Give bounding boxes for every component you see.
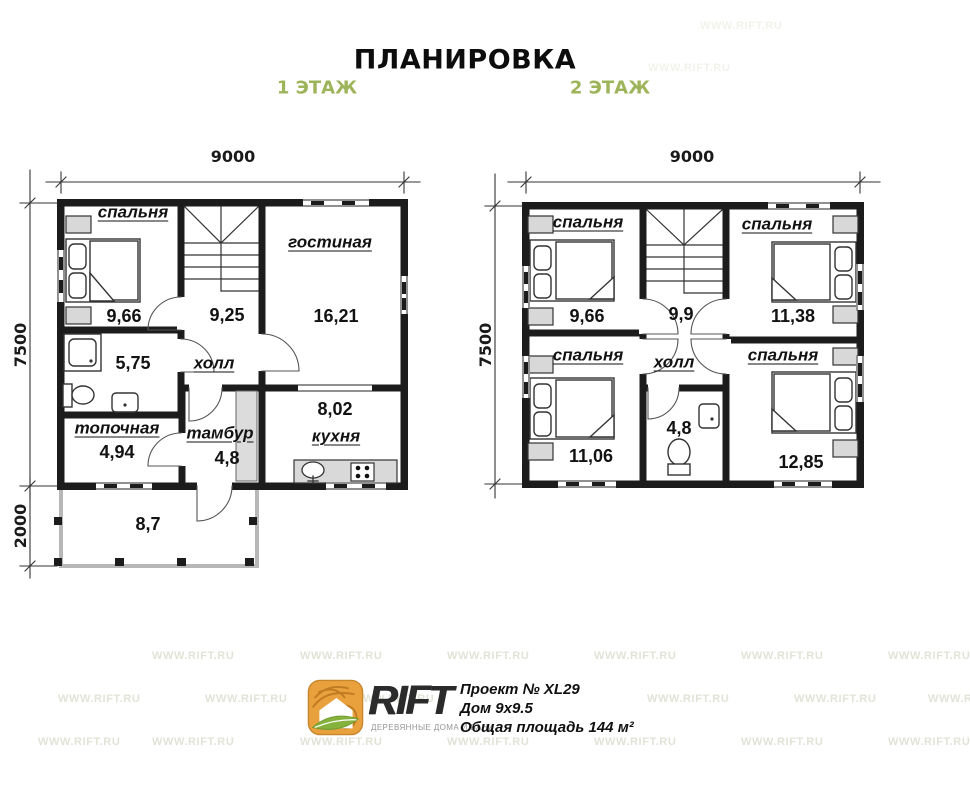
watermark: WWW.RIFT.RU (152, 736, 234, 748)
watermark: WWW.RIFT.RU (38, 736, 120, 748)
dim-height-floor2: 7500 (478, 323, 494, 368)
watermark: WWW.RIFT.RU (205, 693, 287, 705)
room-area-living-f1: 16,21 (313, 307, 358, 325)
room-label-bedroom-f1: спальня (98, 204, 168, 221)
house-size: Дом 9х9.5 (460, 699, 634, 718)
room-label-tambour-f1: тамбур (186, 425, 253, 442)
watermark: WWW.RIFT.RU (447, 650, 529, 662)
stove-icon (351, 463, 374, 481)
room-label-kitchen-f1: кухня (312, 428, 360, 445)
kitchen-counter (294, 460, 397, 484)
bed-icon (772, 242, 856, 302)
room-area-terrace-f1: 8,7 (135, 515, 160, 533)
room-area-bedroom-br-f2: 12,85 (778, 453, 823, 471)
room-area-tambour-f1: 4,8 (214, 449, 239, 467)
room-label-living-f1: гостиная (288, 234, 372, 251)
bed-icon (530, 240, 614, 301)
room-label-bedroom-tr-f2: спальня (742, 216, 812, 233)
room-area-bedroom-f1: 9,66 (106, 307, 141, 325)
room-area-bedroom-tl-f2: 9,66 (569, 307, 604, 325)
sink-icon (699, 404, 719, 428)
project-info: Проект № XL29 Дом 9х9.5 Общая площадь 14… (460, 680, 634, 737)
watermark: WWW.RIFT.RU (594, 650, 676, 662)
watermark: WWW.RIFT.RU (447, 736, 529, 748)
room-area-kitchen-f1: 8,02 (317, 400, 352, 418)
watermark: WWW.RIFT.RU (152, 650, 234, 662)
floor-plan-poster: WWW.RIFT.RU WWW.RIFT.RU (0, 0, 970, 810)
page-title: ПЛАНИРОВКА (354, 45, 576, 76)
dim-width-floor1: 9000 (211, 149, 256, 165)
dim-height-floor1: 7500 (13, 323, 29, 368)
dim-width-floor2: 9000 (670, 149, 715, 165)
shower-icon (64, 334, 101, 371)
project-number: Проект № XL29 (460, 680, 634, 699)
floor1-label: 1 ЭТАЖ (277, 78, 357, 99)
room-area-bedroom-tr-f2: 11,38 (771, 307, 815, 325)
toilet-icon (668, 439, 690, 475)
brand-wordmark: RIFT (368, 677, 451, 724)
room-area-bath-f2: 4,8 (666, 419, 691, 437)
bed-icon (772, 372, 856, 433)
watermark: WWW.RIFT.RU (594, 736, 676, 748)
room-label-hall-f1: холл (194, 355, 235, 372)
rift-logo-icon (307, 679, 364, 736)
watermark: WWW.RIFT.RU (741, 650, 823, 662)
room-area-boiler-f1: 4,94 (99, 443, 134, 461)
floor2-label: 2 ЭТАЖ (570, 78, 650, 99)
room-label-hall-f2: холл (654, 354, 695, 371)
bed-icon (66, 239, 140, 302)
room-area-hall-f1: 9,25 (209, 306, 244, 324)
watermark: WWW.RIFT.RU (794, 693, 876, 705)
watermark: WWW.RIFT.RU (300, 736, 382, 748)
watermark: WWW.RIFT.RU (741, 736, 823, 748)
room-label-bedroom-br-f2: спальня (748, 347, 818, 364)
room-area-hall-f2: 9,9 (668, 305, 693, 323)
room-area-bedroom-bl-f2: 11,06 (569, 447, 613, 465)
sink-icon (112, 393, 138, 412)
watermark: WWW.RIFT.RU (647, 693, 729, 705)
room-label-bedroom-tl-f2: спальня (553, 214, 623, 231)
room-label-boiler-f1: топочная (75, 420, 160, 437)
watermark: WWW.RIFT.RU (300, 650, 382, 662)
room-label-bedroom-bl-f2: спальня (553, 347, 623, 364)
bed-icon (530, 378, 614, 439)
watermark: WWW.RIFT.RU (888, 650, 970, 662)
watermark: WWW.RIFT.RU (888, 736, 970, 748)
watermark: WWW.RIFT.RU (928, 693, 970, 705)
dim-terrace-floor1: 2000 (13, 504, 29, 549)
total-area: Общая площадь 144 м² (460, 718, 634, 737)
watermark: WWW.RIFT.RU (58, 693, 140, 705)
room-area-bath-f1: 5,75 (115, 354, 150, 372)
